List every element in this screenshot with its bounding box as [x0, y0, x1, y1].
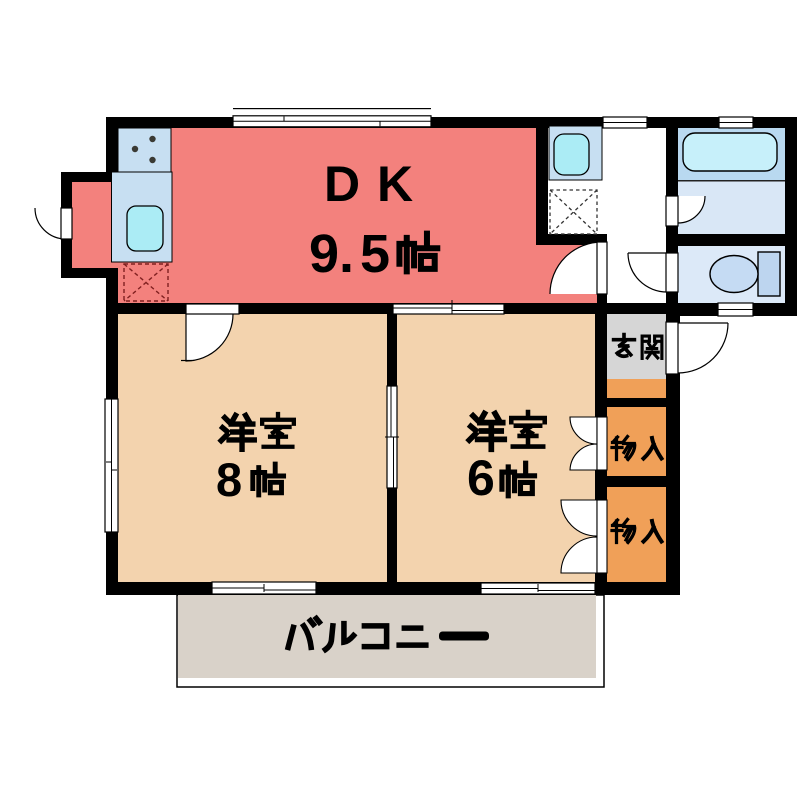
svg-text:6: 6 [467, 450, 495, 506]
svg-text:9.: 9. [309, 224, 354, 284]
svg-text:K: K [377, 156, 413, 212]
svg-text:D: D [324, 156, 360, 212]
svg-text:8: 8 [216, 453, 242, 506]
svg-text:5: 5 [360, 224, 390, 284]
